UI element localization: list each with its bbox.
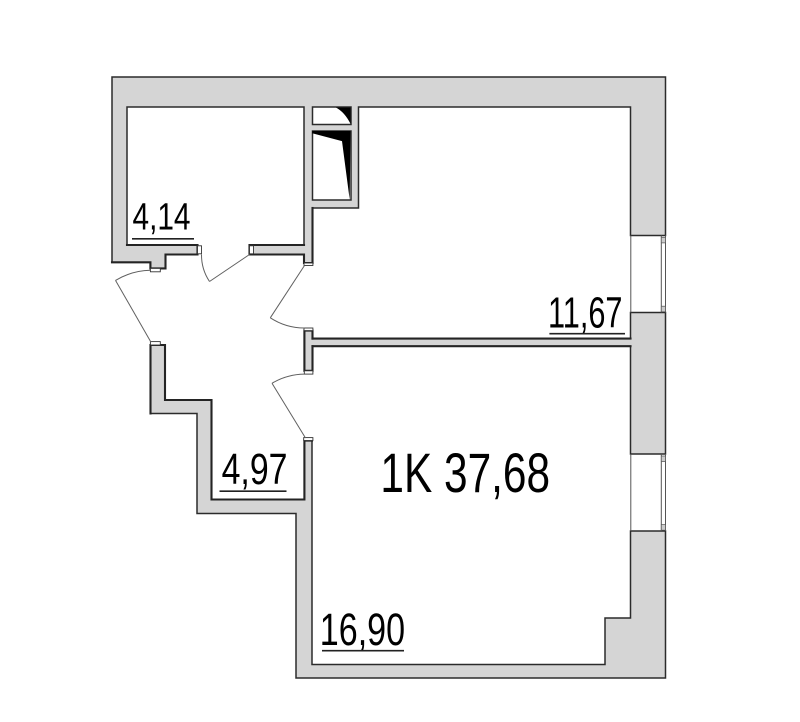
svg-text:11,67: 11,67 <box>548 289 623 338</box>
svg-text:1K 37,68: 1K 37,68 <box>380 441 550 504</box>
svg-text:4,97: 4,97 <box>222 445 288 494</box>
svg-text:4,14: 4,14 <box>133 196 191 238</box>
svg-text:16,90: 16,90 <box>320 604 405 655</box>
